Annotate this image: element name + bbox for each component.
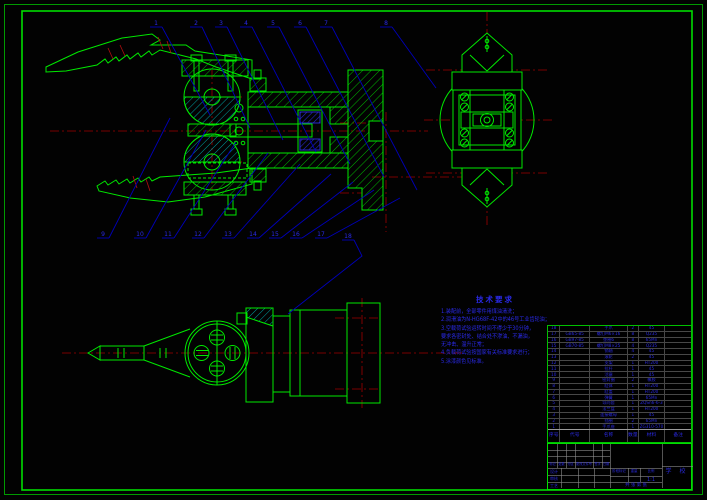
body-connector [273,316,290,392]
balloon-number: 4 [244,20,248,27]
piston-seal [300,112,320,123]
bottom-claw-block [452,150,522,168]
cylinder-end-cap [330,137,348,153]
title-block: 标记 处数 分区 更改文件号 签字 日期 设计 审核 工艺 阶段标记 重量 比例… [547,443,692,490]
cylinder-end-cap [330,107,348,124]
piston-rod [230,124,312,137]
tb-scale-label: 比例 [648,470,655,473]
tb-line [561,468,562,488]
tech-requirement-line: 无冲击、温升正常； [441,341,536,349]
balloon-number: 12 [194,231,202,238]
tech-requirement-line: 1.装配前，全部零件用煤油清洗； [441,308,536,316]
balloon-number: 11 [164,231,172,238]
detail-dot [234,117,238,121]
bom-header-cell: 备注 [665,430,691,442]
tb-line [578,468,579,488]
tech-requirement-line: 2.润滑油为N-HG68F-42中的46号工业齿轮油； [441,316,536,324]
tech-requirement-line: 3.空载荷试验运转时间不得少于30分钟， [441,325,536,333]
bolt-shaft [194,195,199,209]
tech-requirement-line: 5.涂漆颜色见标准。 [441,358,536,366]
jaw-tick-marks [108,37,171,191]
tb-weight-label: 重量 [631,470,638,473]
tb-sign-label: 设计 [550,470,558,474]
tb-revision-label: 标记 [549,463,555,466]
tb-revision-label: 分区 [567,463,573,466]
bolt-head [225,209,236,215]
balloon-number: 15 [271,231,279,238]
upper-pulley-section [184,97,240,125]
bom-header-cell: 代号 [560,430,590,442]
detail-dot [241,117,245,121]
balloon-number: 10 [136,231,144,238]
tech-requirements-title: 技术要求 [441,294,549,305]
tb-scale-value: 1:1 [647,478,655,483]
balloon-number: 17 [317,231,325,238]
balloon-number: 3 [219,20,223,27]
tech-requirements: 技术要求 1.装配前，全部零件用煤油清洗；2.润滑油为N-HG68F-42中的4… [441,294,549,366]
bom-header-cell: 名称 [590,430,628,442]
center-web [188,124,236,136]
balloon-number: 13 [224,231,232,238]
tb-line [594,468,595,488]
balloon-number: 16 [292,231,300,238]
tb-revision-label: 更改文件号 [576,463,592,466]
tech-requirements-lines: 1.装配前，全部零件用煤油清洗；2.润滑油为N-HG68F-42中的46号工业齿… [441,308,549,366]
tb-organization: 学 校 [666,469,689,475]
end-view [440,33,534,207]
tb-sign-label: 工艺 [550,484,558,488]
detail-dot [241,141,245,145]
tb-sheet-label: 共 张 第 张 [625,484,647,488]
bom-header-cell: 材料 [639,430,666,442]
top-claw-block [452,72,522,90]
bom-header-cell: 序号 [548,430,560,442]
tb-revision-label: 处数 [558,463,564,466]
balloon-number: 14 [249,231,257,238]
tb-line [640,468,641,482]
balloon-number: 5 [271,20,275,27]
balloon-number: 6 [298,20,302,27]
tb-revision-label: 日期 [603,463,609,466]
upper-housing-plate [182,60,248,76]
balloon-number: 18 [344,233,352,240]
balloon-number: 2 [194,20,198,27]
lower-housing-plate [184,182,246,195]
bom-header-cell: 数量 [628,430,639,442]
balloon-numbers: 1 2 3 4 5 6 7 8 9 10 11 12 13 14 15 16 1… [101,20,388,240]
parts-table: 18手爪24517GB65-85螺钉M6×168Q23516GB97-85垫圈6… [547,325,692,443]
tb-revision-label: 签字 [594,463,600,466]
flange-notch [369,121,383,141]
tb-line [662,466,693,467]
cad-drawing-screen: 1 2 3 4 5 6 7 8 9 10 11 12 13 14 15 16 1… [0,0,707,500]
tb-stage-label: 阶段标记 [612,470,626,473]
balloon-number: 9 [101,231,105,238]
bom-header-row: 序号代号名称数量材料备注 [548,429,691,442]
bolt-shaft [228,195,233,209]
top-fitting-section [246,308,273,326]
balloon-number: 7 [324,20,328,27]
cylinder-fitting-bottom [250,169,266,182]
main-assembly-view [46,34,383,215]
tech-requirement-line: 要求各密封处、结合处不渗油、不漏油， [441,333,536,341]
balloon-number: 1 [154,20,158,27]
tb-line [628,468,629,482]
balloon-number: 8 [384,20,388,27]
tech-requirement-line: 4.负载荷试验按国家有关标准要求进行； [441,349,536,357]
tb-sign-label: 审核 [550,477,558,481]
